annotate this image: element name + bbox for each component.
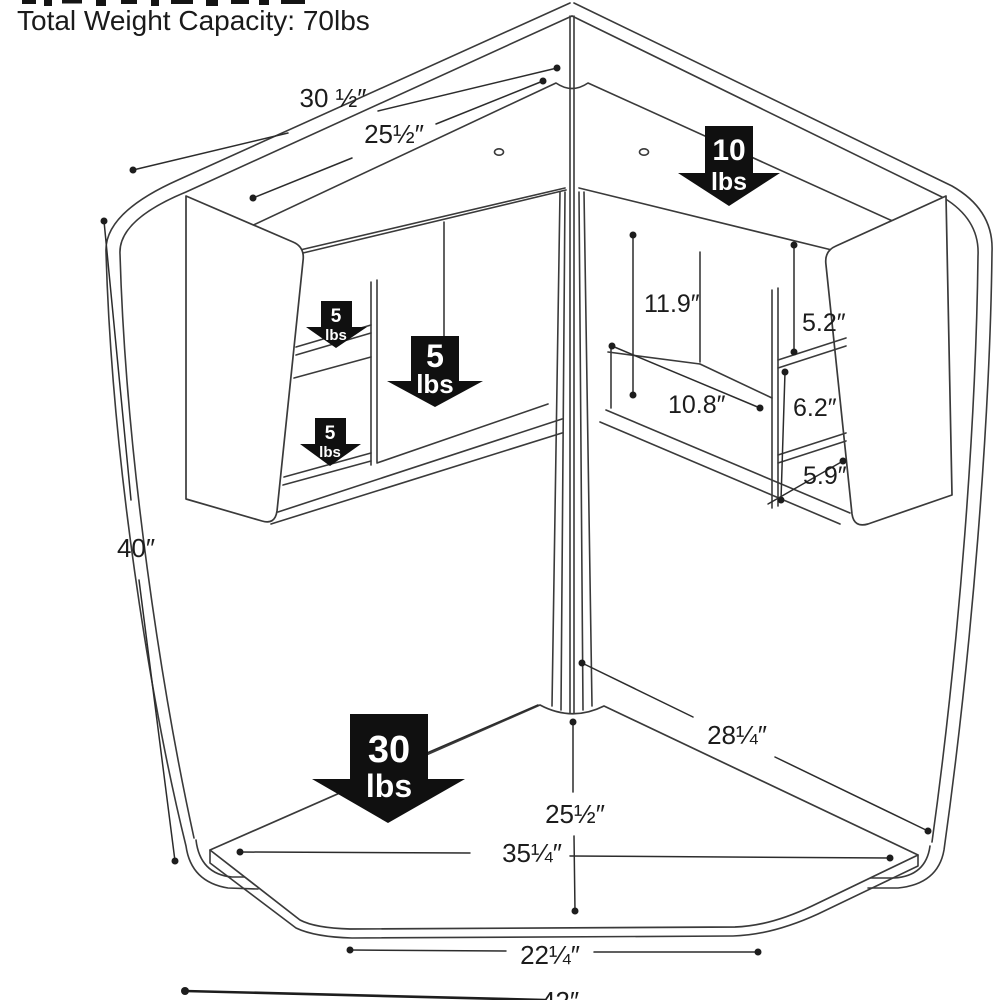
dim-label-10-8: 10.8″ <box>668 391 726 419</box>
dimension-right-compartment-height: 11.9″ <box>630 232 700 399</box>
dim-label-5-2: 5.2″ <box>802 309 846 337</box>
dim-label-6-2: 6.2″ <box>793 394 837 422</box>
dimension-side-height: 40″ <box>101 218 179 865</box>
dim-label-25-1-2-bottom: 25½″ <box>545 799 605 829</box>
dim-label-28-1-4: 28¼″ <box>707 720 767 750</box>
dimension-diagram: Total Weight Capacity: 70lbs <box>0 0 1000 1000</box>
weight-arrow-unit: lbs <box>319 444 341 461</box>
dimension-desk-front-edge-width: 22¼″ <box>347 940 762 970</box>
weight-arrow-hutch-top: 10 lbs <box>678 126 780 206</box>
weight-arrow-unit: lbs <box>325 327 347 344</box>
total-weight-capacity-label: Total Weight Capacity: 70lbs <box>17 5 370 36</box>
weight-arrow-value: 30 <box>368 729 410 771</box>
dimension-overall-width: 42″ <box>181 986 579 1000</box>
weight-arrow-value: 10 <box>712 134 745 167</box>
dim-label-35-1-4: 35¼″ <box>502 838 562 868</box>
weight-arrow-value: 5 <box>331 306 342 327</box>
dim-label-11-9: 11.9″ <box>644 290 700 318</box>
dimension-right-compartment-width: 10.8″ <box>609 343 764 420</box>
dim-label-42: 42″ <box>541 986 579 1000</box>
weight-arrow-left-compartment: 5 lbs <box>387 336 483 407</box>
dim-label-5-9: 5.9″ <box>803 462 847 490</box>
dim-label-25-1-2-top: 25½″ <box>364 119 424 149</box>
weight-arrow-value: 5 <box>325 423 336 444</box>
weight-arrow-unit: lbs <box>416 369 454 399</box>
dim-label-40: 40″ <box>117 533 155 563</box>
weight-arrow-unit: lbs <box>711 168 747 196</box>
dim-label-30-1-2: 30 ½″ <box>299 83 366 113</box>
dim-label-22-1-4: 22¼″ <box>520 940 580 970</box>
left-hutch-side-panel <box>186 196 303 522</box>
dimension-right-cubby-bottom-depth: 5.9″ <box>768 458 847 505</box>
weight-arrow-unit: lbs <box>366 768 412 804</box>
